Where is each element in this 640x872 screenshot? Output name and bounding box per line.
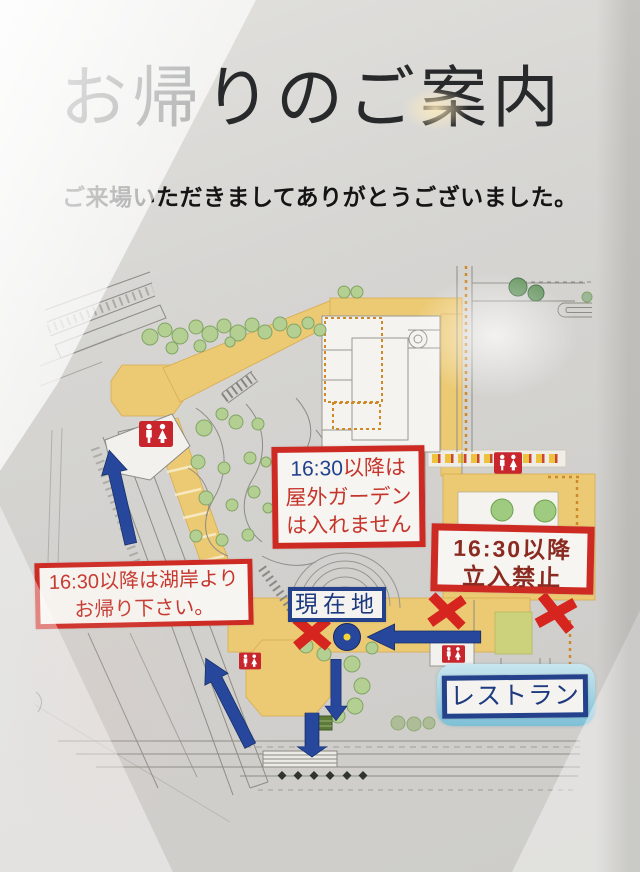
notice-no-entry-line1: 16:30以降: [438, 533, 588, 564]
notice-garden-line1: 16:30以降は: [277, 454, 418, 484]
restroom-icon: [442, 645, 465, 663]
restaurant-label: レストラン: [442, 674, 588, 719]
current-location-marker: [334, 624, 361, 651]
current-location-label: 現在地: [288, 587, 386, 622]
notice-garden-line2: 屋外ガーデン: [278, 483, 419, 513]
restroom-icon: [494, 452, 522, 473]
notice-lakeside-line1: 16:30以降は湖岸より: [39, 565, 248, 597]
photographed-poster: { "poster": { "title": "お帰りのご案内", "thank…: [0, 0, 640, 872]
notice-no-entry-line2: 立入禁止: [437, 561, 587, 592]
notice-no-entry: 16:30以降 立入禁止: [430, 523, 594, 594]
restroom-icon: [139, 421, 173, 447]
notice-lakeside-exit: 16:30以降は湖岸より お帰り下さい。: [34, 559, 253, 630]
notice-garden-line3: は入れません: [278, 511, 419, 541]
site-map: [0, 0, 640, 872]
platform-hatch: [263, 751, 337, 767]
notice-lakeside-line2: お帰り下さい。: [40, 593, 249, 625]
restroom-icon: [239, 653, 261, 670]
notice-garden-closure: 16:30以降は 屋外ガーデン は入れません: [271, 445, 425, 549]
notice-garden-time: 16:30: [290, 457, 343, 481]
